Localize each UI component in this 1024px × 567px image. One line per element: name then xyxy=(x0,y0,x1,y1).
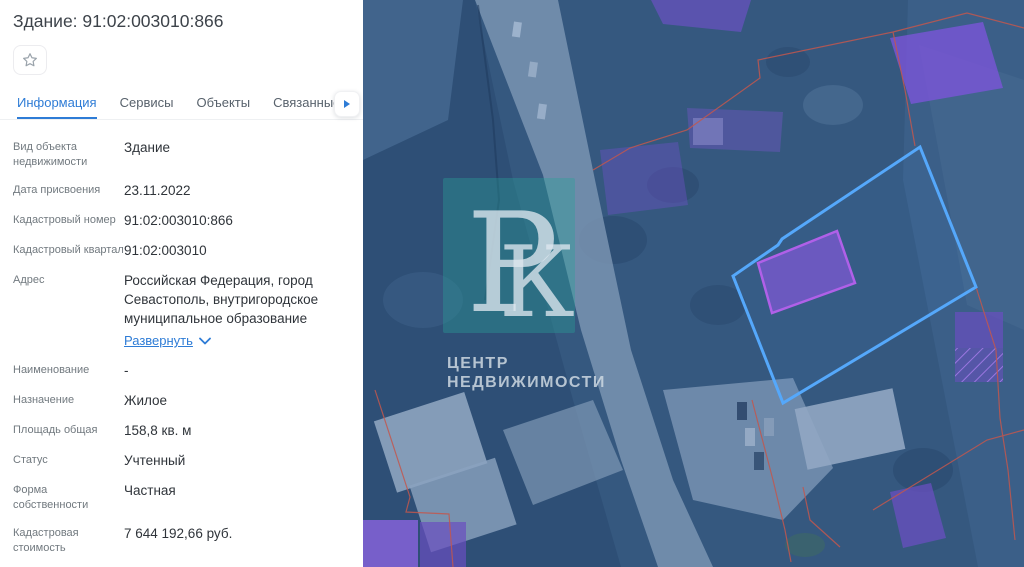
field-value: 7 644 192,66 руб. xyxy=(124,524,232,556)
field-row: Форма собственностиЧастная xyxy=(0,481,363,513)
watermark-line1: ЦЕНТР xyxy=(447,355,509,372)
tab-0[interactable]: Информация xyxy=(17,95,97,119)
field-label: Площадь общая xyxy=(13,421,124,440)
field-value: 91:02:003010:866 xyxy=(124,211,233,230)
field-row: НазначениеЖилое xyxy=(0,391,363,410)
field-row: Кадастровая стоимость7 644 192,66 руб. xyxy=(0,524,363,556)
watermark-line2: НЕДВИЖИМОСТИ xyxy=(447,374,606,391)
tab-bar: ИнформацияСервисыОбъектыСвязанные ЗУЧаст… xyxy=(0,89,363,120)
watermark-monogram-k: К xyxy=(499,226,575,340)
field-value: 23.11.2022 xyxy=(124,181,191,200)
field-label: Форма собственности xyxy=(13,481,124,513)
field-label: Адрес xyxy=(13,271,124,350)
field-label: Кадастровая стоимость xyxy=(13,524,124,556)
tabs-scroll-right-button[interactable] xyxy=(334,91,360,117)
field-label: Кадастровый номер xyxy=(13,211,124,230)
field-label: Статус xyxy=(13,451,124,470)
field-row: АдресРоссийская Федерация, город Севасто… xyxy=(0,271,363,350)
field-value: Российская Федерация, город Севастополь,… xyxy=(124,271,349,350)
field-label: Кадастровый квартал xyxy=(13,241,124,260)
field-value: Учтенный xyxy=(124,451,185,470)
field-label: Назначение xyxy=(13,391,124,410)
field-label: Наименование xyxy=(13,361,124,380)
object-info-panel: Здание: 91:02:003010:866 ИнформацияСерви… xyxy=(0,0,363,567)
field-row: Кадастровый номер91:02:003010:866 xyxy=(0,211,363,230)
app-window: Здание: 91:02:003010:866 ИнформацияСерви… xyxy=(0,0,1024,567)
fields: Вид объекта недвижимостиЗданиеДата присв… xyxy=(0,138,363,567)
field-row: Дата присвоения23.11.2022 xyxy=(0,181,363,200)
field-row: Вид объекта недвижимостиЗдание xyxy=(0,138,363,170)
field-row: Кадастровый квартал91:02:003010 xyxy=(0,241,363,260)
page-title: Здание: 91:02:003010:866 xyxy=(13,10,349,32)
field-value: - xyxy=(124,361,129,380)
field-row: Наименование- xyxy=(0,361,363,380)
tab-1[interactable]: Сервисы xyxy=(120,95,174,119)
expand-address-link[interactable]: Развернуть xyxy=(124,331,193,350)
field-value: Жилое xyxy=(124,391,167,410)
star-icon xyxy=(21,51,39,69)
field-value: 158,8 кв. м xyxy=(124,421,191,440)
field-row: СтатусУчтенный xyxy=(0,451,363,470)
favorite-button[interactable] xyxy=(13,45,47,75)
field-row: Площадь общая158,8 кв. м xyxy=(0,421,363,440)
map-canvas: Р К ЦЕНТР НЕДВИЖИМОСТИ xyxy=(363,0,1024,567)
field-label: Дата присвоения xyxy=(13,181,124,200)
field-value: 91:02:003010 xyxy=(124,241,207,260)
cadastral-map[interactable]: Р К ЦЕНТР НЕДВИЖИМОСТИ xyxy=(363,0,1024,567)
field-label: Вид объекта недвижимости xyxy=(13,138,124,170)
triangle-right-icon xyxy=(343,99,351,109)
tab-2[interactable]: Объекты xyxy=(196,95,250,119)
field-value: Частная xyxy=(124,481,176,513)
field-value: Здание xyxy=(124,138,170,170)
chevron-down-icon xyxy=(199,337,211,345)
